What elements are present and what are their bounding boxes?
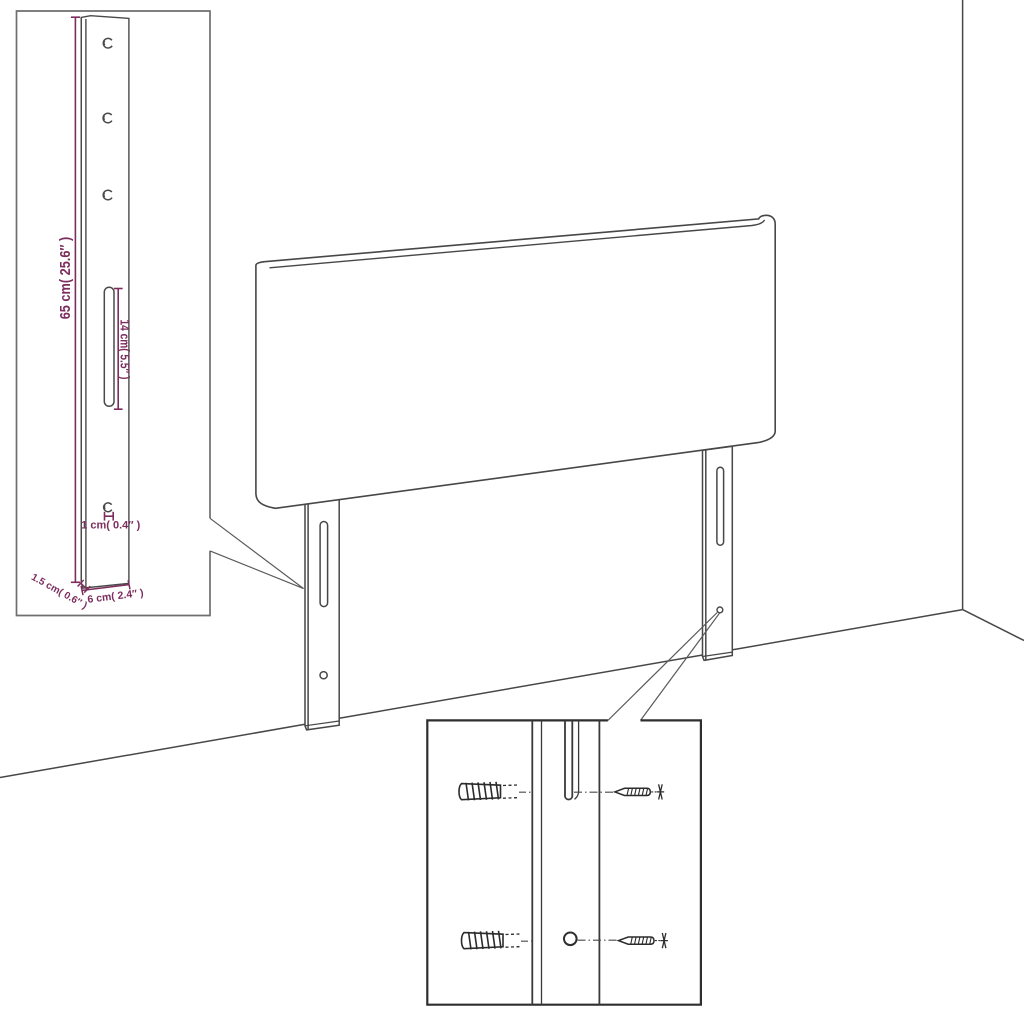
svg-text:14 cm( 5.5″ ): 14 cm( 5.5″ ) [117,319,131,379]
svg-text:65 cm( 25.6″ ): 65 cm( 25.6″ ) [56,237,73,320]
svg-text:1 cm( 0.4″ ): 1 cm( 0.4″ ) [81,520,140,532]
